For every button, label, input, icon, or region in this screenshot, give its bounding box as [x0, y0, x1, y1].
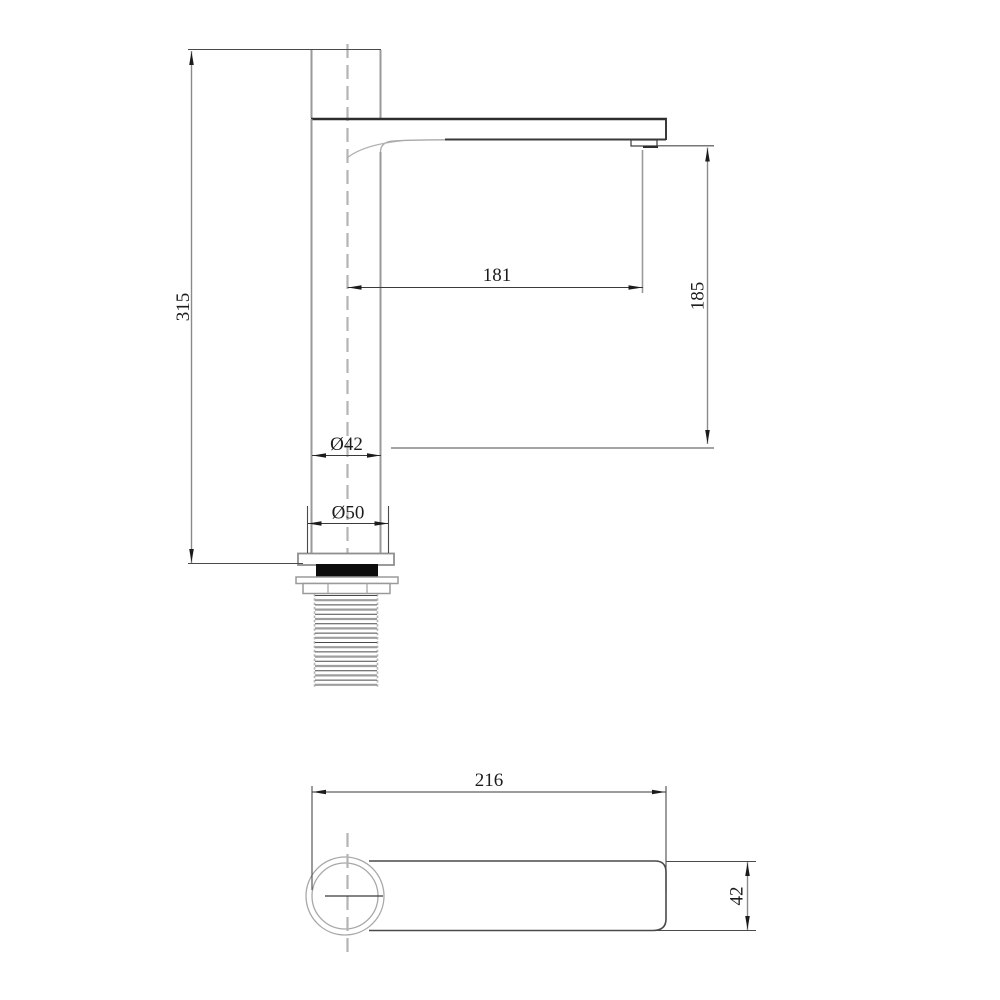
top-view: 216 42: [306, 770, 756, 957]
arrowhead-left: [308, 521, 322, 526]
dimension-spout-height: 185: [391, 146, 714, 448]
arrowhead-up: [189, 52, 194, 66]
dimension-spout-reach: 181: [348, 150, 644, 293]
arrowhead-down: [189, 549, 194, 563]
dimension-label-base-diameter: Ø50: [332, 503, 365, 524]
rubber-gasket: [316, 564, 378, 577]
spout-plan-outline: [369, 861, 666, 931]
nut-washer: [296, 577, 398, 584]
dimension-label-reach: 181: [483, 265, 512, 286]
arrowhead-right: [367, 453, 381, 458]
arrowhead-right: [652, 790, 666, 795]
aerator-outline: [631, 140, 657, 146]
arrowhead-right: [629, 285, 643, 290]
faucet-dimension-drawing: 315 181 185 Ø42: [0, 0, 1000, 1000]
front-view: 315 181 185 Ø42: [173, 44, 714, 687]
thread-lines: [315, 596, 377, 685]
dimension-spout-width: 42: [655, 862, 756, 931]
nut-body: [303, 584, 390, 594]
dimension-label-spout-height: 185: [688, 282, 709, 311]
mounting-nut: [296, 577, 398, 594]
arrowhead-down: [705, 430, 710, 444]
drawing-canvas: 315 181 185 Ø42: [0, 0, 1000, 1000]
dimension-body-diameter: Ø42: [312, 434, 381, 458]
dimension-label-width: 42: [727, 887, 748, 906]
threaded-shank: [315, 594, 378, 687]
aerator: [631, 140, 658, 147]
dimension-label-height: 315: [173, 293, 194, 322]
arrowhead-up: [745, 863, 750, 877]
handle-outline: [312, 50, 381, 118]
arrowhead-left: [313, 790, 327, 795]
arrowhead-left: [313, 453, 327, 458]
arrowhead-down: [745, 916, 750, 930]
dimension-overall-height: 315: [173, 50, 381, 564]
arrowhead-left: [348, 285, 362, 290]
dimension-overall-length: 216: [312, 770, 666, 892]
dimension-label-body-diameter: Ø42: [330, 434, 363, 455]
arrowhead-up: [705, 148, 710, 162]
dimension-label-length: 216: [475, 770, 504, 791]
spout-underside-contour: [347, 141, 402, 158]
base-flange: [298, 554, 394, 566]
